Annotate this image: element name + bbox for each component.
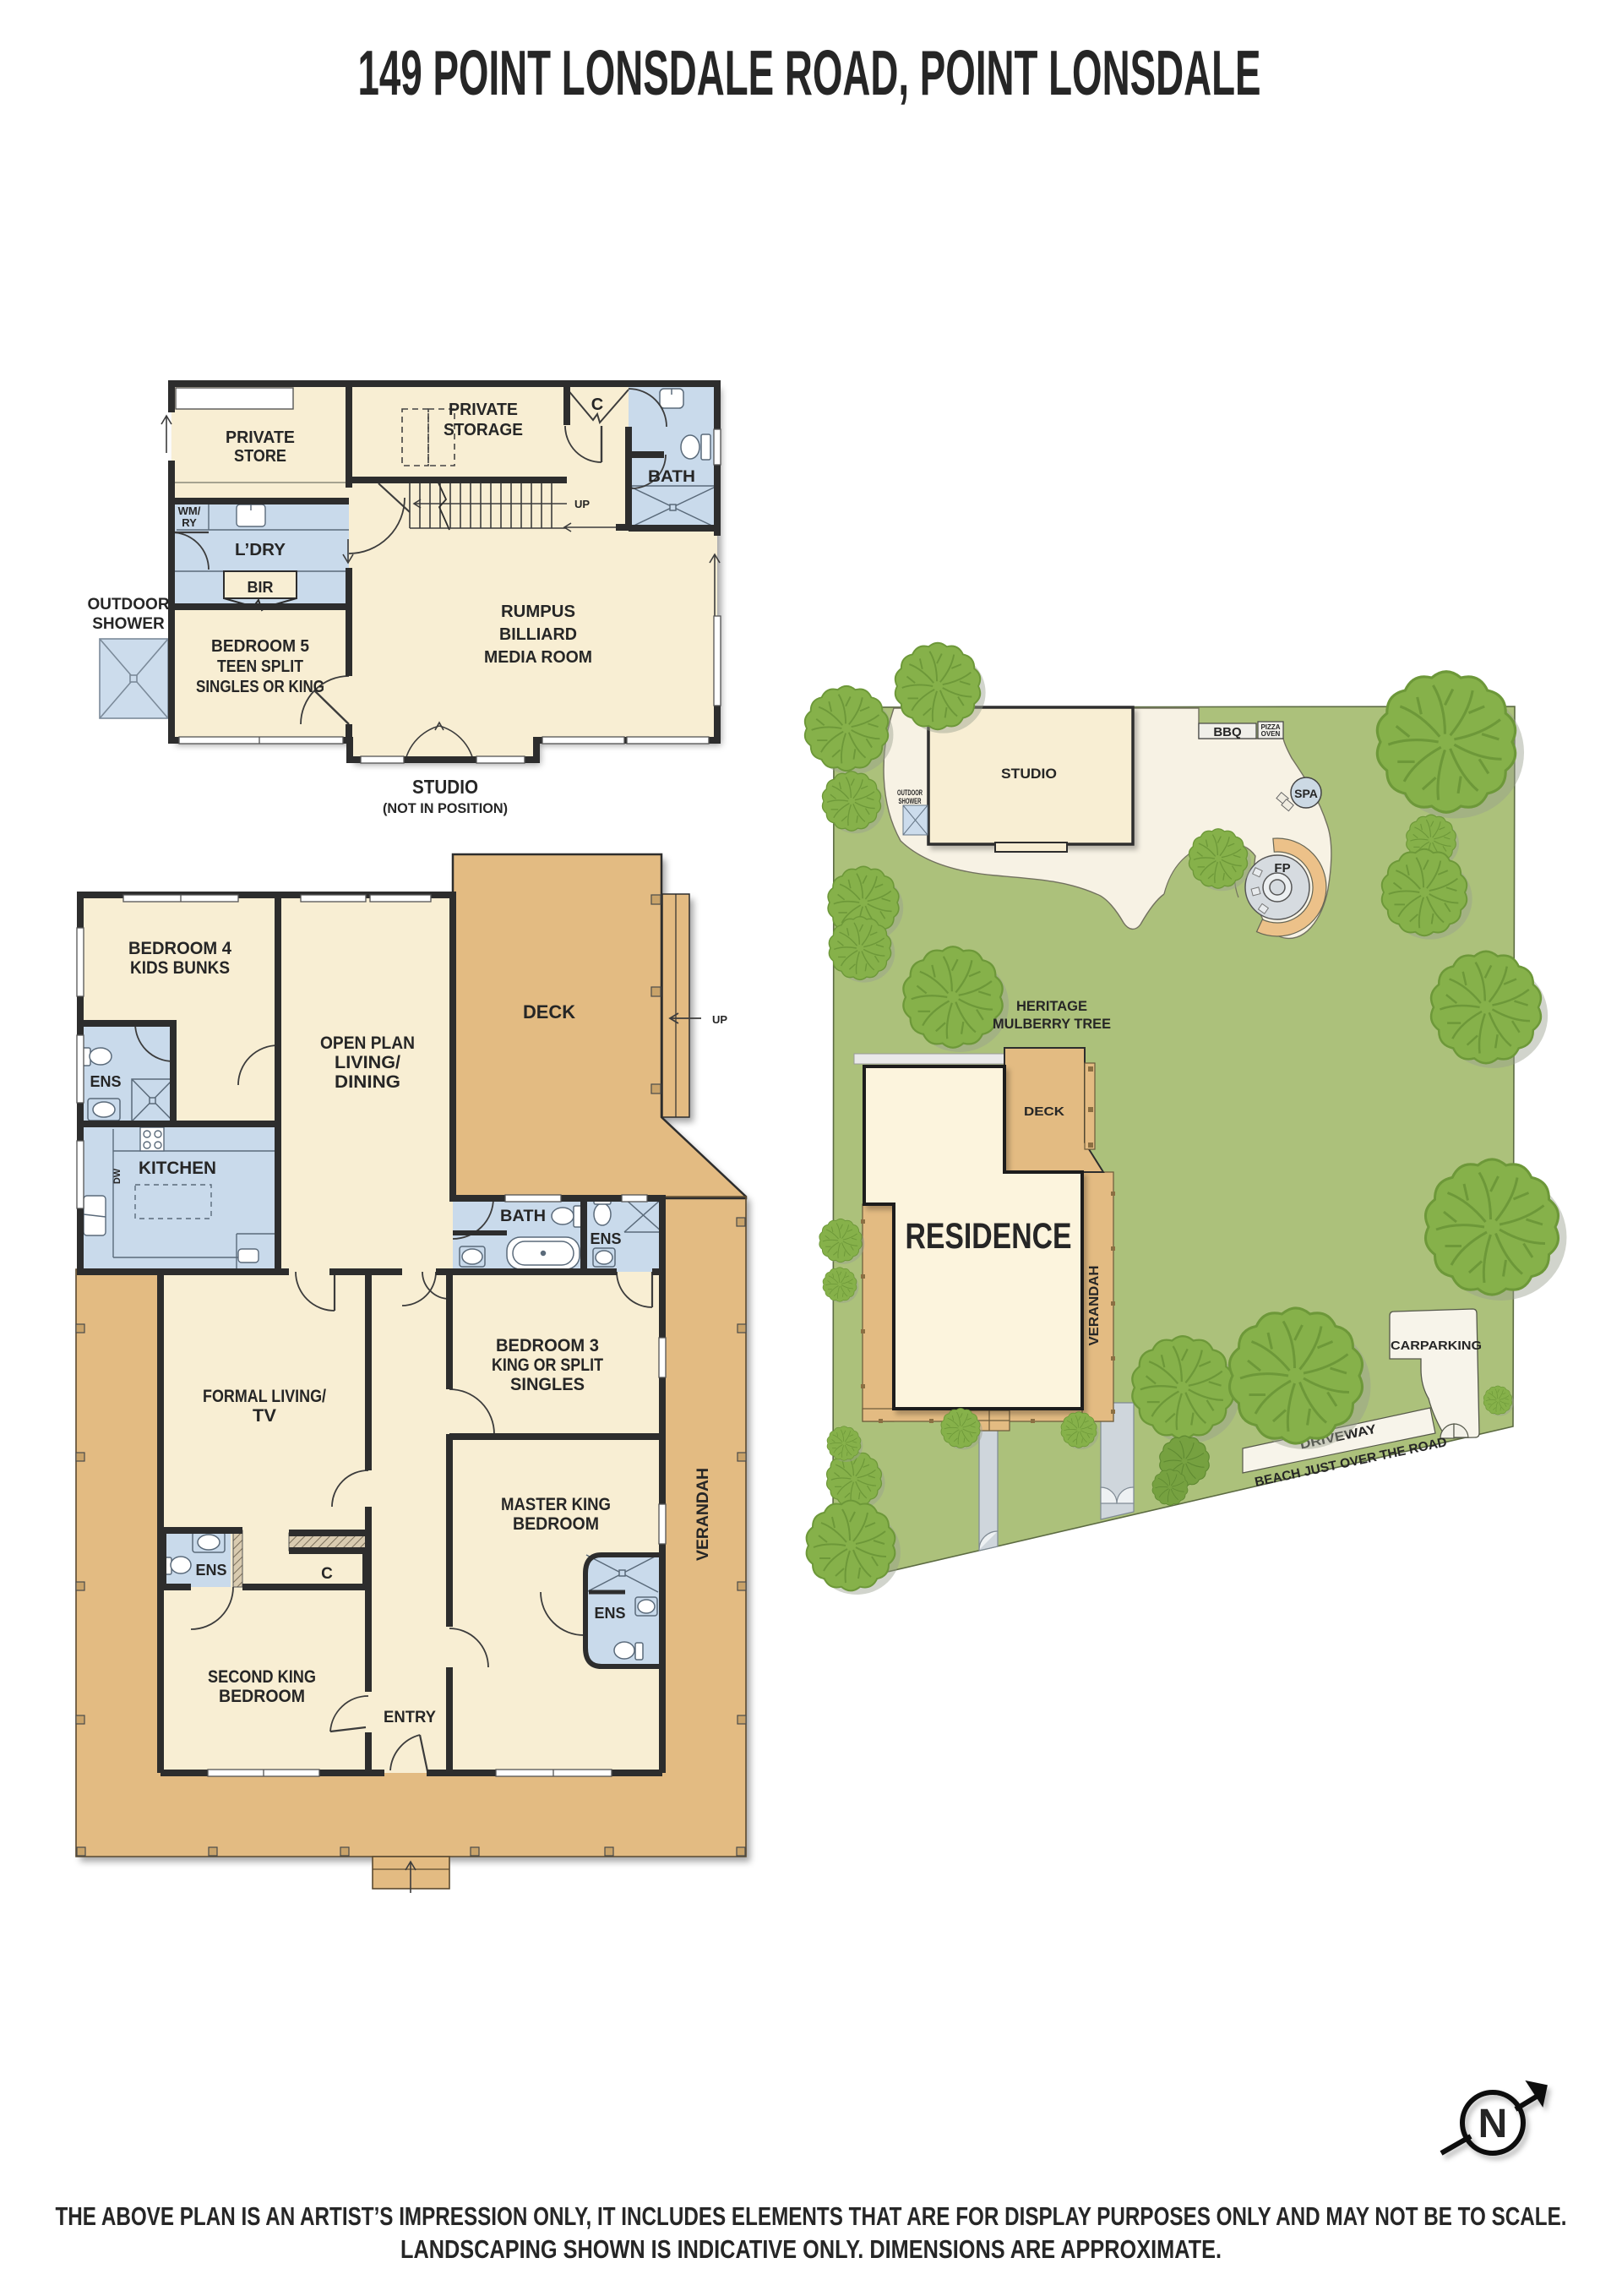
svg-text:TV: TV [253,1406,276,1426]
svg-text:C: C [321,1565,333,1583]
svg-text:STORE: STORE [234,447,286,466]
svg-text:VERANDAH: VERANDAH [1087,1266,1102,1346]
svg-text:BEDROOM 4: BEDROOM 4 [128,939,231,958]
svg-text:LANDSCAPING SHOWN IS INDICATIV: LANDSCAPING SHOWN IS INDICATIVE ONLY. DI… [400,2234,1222,2264]
svg-text:C: C [591,395,603,414]
svg-text:SECOND KING: SECOND KING [208,1667,316,1687]
svg-text:MEDIA ROOM: MEDIA ROOM [484,648,592,667]
svg-text:RY: RY [182,516,197,529]
svg-text:WM/: WM/ [178,504,201,517]
svg-text:SINGLES OR KING: SINGLES OR KING [196,678,324,696]
svg-text:MULBERRY TREE: MULBERRY TREE [993,1016,1111,1032]
svg-text:L’DRY: L’DRY [235,541,286,559]
svg-text:STUDIO: STUDIO [412,776,478,798]
svg-text:OPEN PLAN: OPEN PLAN [320,1033,415,1053]
svg-text:KING OR SPLIT: KING OR SPLIT [492,1355,603,1375]
svg-text:PRIVATE: PRIVATE [449,401,518,419]
svg-text:N: N [1478,2102,1508,2146]
svg-text:DINING: DINING [335,1072,400,1092]
svg-text:VERANDAH: VERANDAH [694,1468,712,1561]
svg-text:KIDS BUNKS: KIDS BUNKS [130,958,230,978]
svg-text:ENS: ENS [195,1562,226,1579]
svg-text:ENS: ENS [594,1605,625,1622]
svg-text:FP: FP [1274,861,1290,875]
svg-text:OUTDOOR: OUTDOOR [897,788,923,797]
svg-text:BIR: BIR [248,579,274,596]
svg-text:(NOT IN POSITION): (NOT IN POSITION) [383,801,508,816]
svg-text:BEDROOM: BEDROOM [513,1514,599,1534]
svg-text:RESIDENCE: RESIDENCE [906,1216,1072,1257]
svg-text:BATH: BATH [500,1208,546,1225]
svg-text:SHOWER: SHOWER [899,797,922,805]
svg-text:149 POINT LONSDALE ROAD, POINT: 149 POINT LONSDALE ROAD, POINT LONSDALE [358,37,1261,108]
svg-text:PRIVATE: PRIVATE [226,428,295,447]
svg-text:STUDIO: STUDIO [1001,766,1057,782]
svg-text:ENS: ENS [90,1073,121,1090]
svg-text:SINGLES: SINGLES [510,1375,585,1394]
svg-text:MASTER KING: MASTER KING [501,1495,611,1514]
svg-text:THE ABOVE PLAN IS AN ARTIST’S: THE ABOVE PLAN IS AN ARTIST’S IMPRESSION… [56,2201,1567,2231]
svg-text:BILLIARD: BILLIARD [499,625,577,644]
svg-text:SHOWER: SHOWER [92,615,165,633]
svg-text:BATH: BATH [648,468,695,486]
svg-text:ENTRY: ENTRY [384,1709,436,1726]
svg-text:BEDROOM 3: BEDROOM 3 [496,1336,599,1355]
svg-text:DECK: DECK [1024,1104,1064,1119]
svg-text:HERITAGE: HERITAGE [1016,998,1087,1014]
svg-text:OVEN: OVEN [1261,730,1281,738]
svg-text:DW: DW [112,1168,122,1184]
svg-text:FORMAL LIVING/: FORMAL LIVING/ [203,1387,326,1406]
svg-text:UP: UP [574,498,590,510]
svg-text:CARPARKING: CARPARKING [1391,1339,1482,1353]
svg-text:SPA: SPA [1294,787,1318,800]
svg-text:BBQ: BBQ [1213,725,1242,739]
svg-text:BEDROOM 5: BEDROOM 5 [211,637,309,656]
svg-text:DECK: DECK [523,1001,575,1023]
svg-text:TEEN SPLIT: TEEN SPLIT [217,657,303,676]
svg-text:ENS: ENS [590,1230,621,1247]
svg-text:OUTDOOR: OUTDOOR [87,596,169,614]
svg-text:STORAGE: STORAGE [444,421,523,439]
svg-text:KITCHEN: KITCHEN [139,1159,216,1178]
svg-text:BEDROOM: BEDROOM [219,1687,305,1706]
svg-text:UP: UP [712,1013,727,1026]
svg-text:LIVING/: LIVING/ [335,1053,400,1072]
svg-text:RUMPUS: RUMPUS [501,603,575,621]
